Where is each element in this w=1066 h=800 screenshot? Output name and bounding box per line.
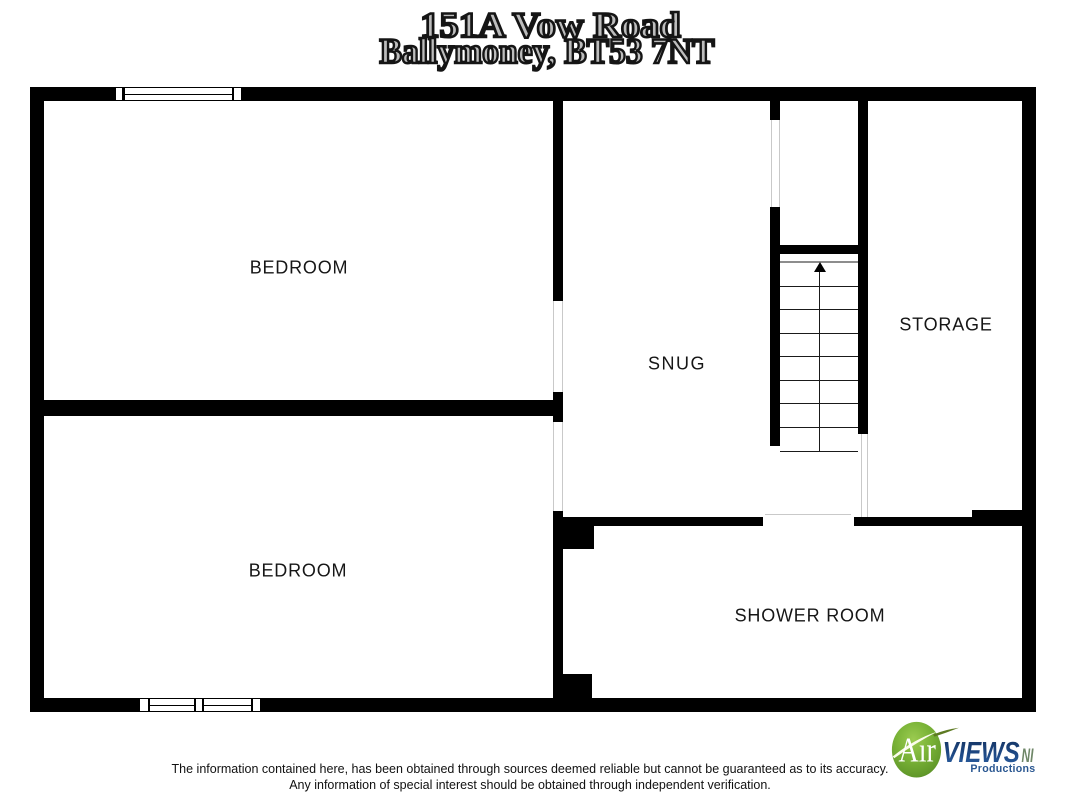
svg-text:Aır: Aır — [899, 731, 937, 770]
svg-text:Productions: Productions — [970, 763, 1035, 775]
